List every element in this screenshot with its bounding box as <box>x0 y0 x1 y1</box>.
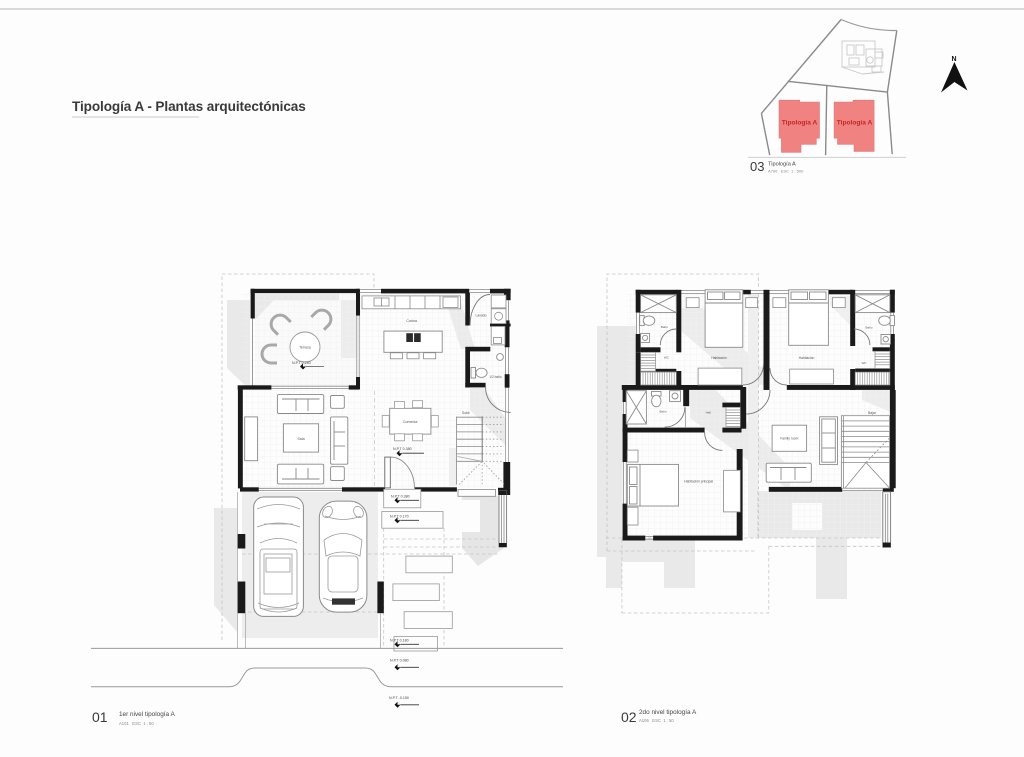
svg-text:Cocina: Cocina <box>406 319 417 323</box>
svg-text:N.P.T 0.180: N.P.T 0.180 <box>390 639 409 643</box>
svg-text:03: 03 <box>750 159 764 174</box>
svg-text:Sala: Sala <box>297 437 304 441</box>
svg-text:N.P.T 0.170: N.P.T 0.170 <box>390 515 409 519</box>
svg-text:A106 ESC 1 : 50: A106 ESC 1 : 50 <box>639 718 674 723</box>
svg-text:N.P.T 0.080: N.P.T 0.080 <box>390 659 409 663</box>
svg-text:1/2 baño: 1/2 baño <box>489 375 502 379</box>
svg-text:Hall: Hall <box>706 411 712 415</box>
svg-text:Baño: Baño <box>865 326 872 330</box>
svg-text:Lavado: Lavado <box>475 314 486 318</box>
svg-text:N.P.T 0.380: N.P.T 0.380 <box>393 447 412 451</box>
svg-text:WC: WC <box>862 361 868 365</box>
svg-text:A101 ESC 1 : 50: A101 ESC 1 : 50 <box>119 721 154 726</box>
svg-text:Baño: Baño <box>661 325 668 329</box>
svg-text:1er nivel tipología A: 1er nivel tipología A <box>119 711 176 718</box>
svg-text:N: N <box>951 56 956 63</box>
svg-text:N.P.T -0.150: N.P.T -0.150 <box>389 696 409 700</box>
svg-text:N.P.T 0.380: N.P.T 0.380 <box>391 495 410 499</box>
svg-text:Comedor: Comedor <box>403 420 419 424</box>
svg-text:Tipología A: Tipología A <box>768 162 796 168</box>
svg-text:WC: WC <box>664 356 670 360</box>
svg-text:02: 02 <box>621 709 637 725</box>
svg-text:Subir: Subir <box>462 411 471 415</box>
svg-text:Habitación principal: Habitación principal <box>684 480 713 484</box>
svg-text:01: 01 <box>92 709 108 725</box>
svg-text:Tipología A - Plantas arquitec: Tipología A - Plantas arquitectónicas <box>72 99 306 114</box>
svg-text:Habitación: Habitación <box>711 356 727 360</box>
svg-text:Habitación: Habitación <box>799 356 815 360</box>
svg-text:Bajar: Bajar <box>868 411 877 415</box>
svg-text:Family room: Family room <box>780 437 798 441</box>
svg-text:Tipología A: Tipología A <box>837 120 873 127</box>
svg-text:Terraza: Terraza <box>299 346 310 350</box>
svg-text:Baño: Baño <box>659 410 666 414</box>
svg-text:2do nivel tipología A: 2do nivel tipología A <box>639 709 697 716</box>
svg-text:Tipología A: Tipología A <box>782 120 818 127</box>
svg-text:A700 ESC 1 : 500: A700 ESC 1 : 500 <box>768 169 804 174</box>
svg-text:N.P.T 0.240: N.P.T 0.240 <box>292 361 311 365</box>
